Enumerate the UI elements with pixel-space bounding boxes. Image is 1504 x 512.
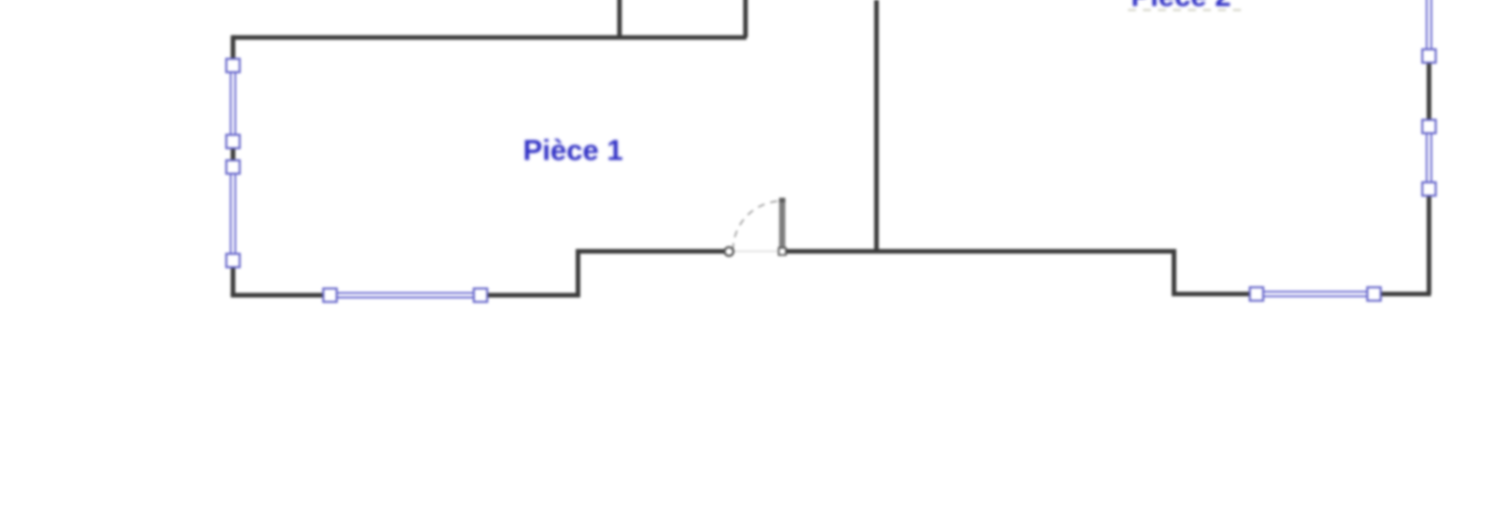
svg-text:Pièce 1: Pièce 1	[523, 135, 623, 167]
